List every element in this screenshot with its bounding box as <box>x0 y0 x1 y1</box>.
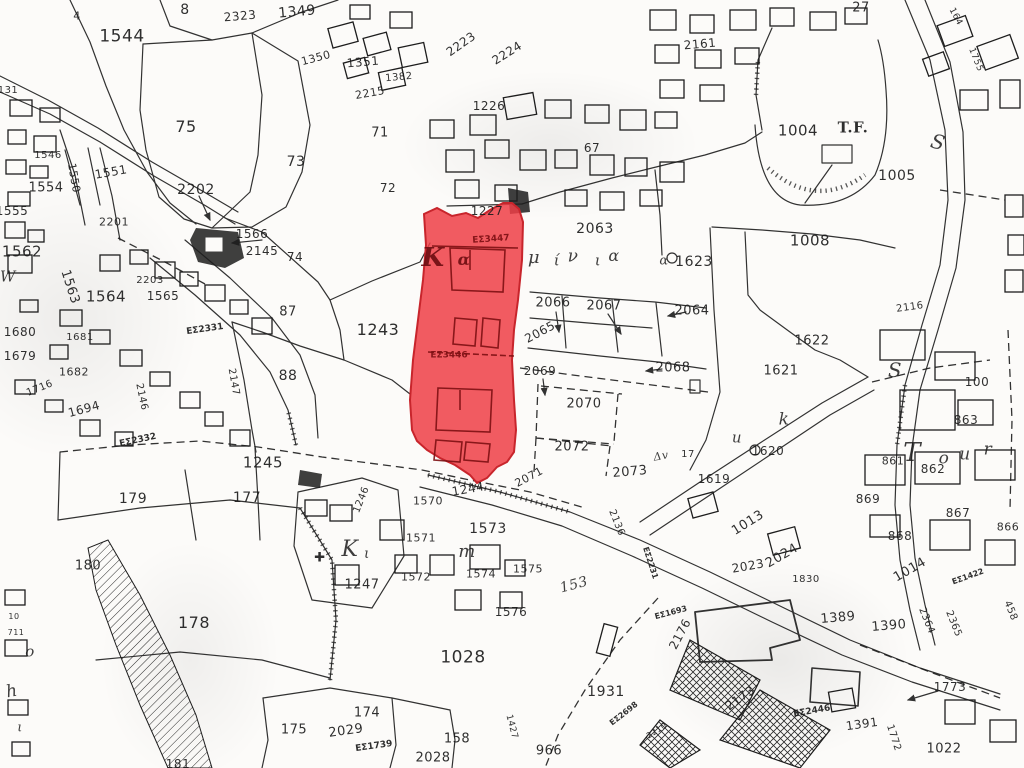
map-label: Δv <box>653 449 670 462</box>
map-label: 2202 <box>177 183 215 197</box>
map-label: 867 <box>946 507 970 519</box>
map-label: Κ <box>342 539 359 561</box>
map-label: 1620 <box>752 445 785 457</box>
map-label: 1028 <box>440 650 485 667</box>
map-label: 1247 <box>344 579 379 592</box>
map-label: 2364 <box>916 606 936 635</box>
map-label: EΣ1422 <box>951 568 985 587</box>
map-label: 10 <box>8 613 19 621</box>
map-label: 2067 <box>586 300 621 313</box>
map-label: 88 <box>279 369 298 383</box>
map-label: 1623 <box>675 255 713 269</box>
map-label: 27 <box>852 2 870 15</box>
map-label: 1014 <box>892 556 929 585</box>
map-label: α <box>659 255 668 268</box>
map-label: 177 <box>233 491 261 505</box>
map-label: 966 <box>536 745 562 758</box>
map-label: EΣ2332 <box>119 433 157 450</box>
map-label: 1564 <box>86 290 126 305</box>
map-label: m <box>458 543 476 561</box>
map-label: 180 <box>75 560 101 573</box>
map-label: 1679 <box>4 350 37 362</box>
map-label: 2116 <box>896 301 925 315</box>
map-label: 1226 <box>473 100 506 112</box>
map-label: 2071 <box>513 465 545 489</box>
map-label: 1550 <box>66 162 82 193</box>
map-label: 2136 <box>606 508 626 537</box>
map-label: 1681 <box>66 333 93 343</box>
map-label: T <box>903 440 921 466</box>
map-label: EΣ3447 <box>472 234 510 246</box>
map-label: 2203 <box>136 276 163 286</box>
map-label: 1427 <box>503 714 518 740</box>
map-label: 179 <box>119 492 147 506</box>
map-label: 1682 <box>59 367 89 378</box>
map-label: 1008 <box>790 234 830 249</box>
map-label: S <box>929 131 948 154</box>
map-label: 74 <box>287 251 303 263</box>
map-label: 1390 <box>871 618 907 634</box>
map-label: 2145 <box>246 245 279 257</box>
map-label: 1571 <box>406 533 436 544</box>
map-label: 1931 <box>587 685 625 699</box>
map-label: 1551 <box>94 163 128 180</box>
map-label: u <box>959 447 970 464</box>
map-label: ν <box>568 249 579 266</box>
map-label: 1389 <box>820 610 856 626</box>
map-label: 2323 <box>223 9 256 24</box>
map-label: 869 <box>856 493 880 505</box>
map-label: EΣ2331 <box>186 323 224 337</box>
map-label: 4 <box>73 11 81 22</box>
map-label: 73 <box>287 155 306 169</box>
map-label: ί <box>554 254 560 269</box>
map-label: 17 <box>681 450 695 460</box>
map-label: r <box>984 442 993 459</box>
map-label: 1772 <box>884 723 902 752</box>
map-label: 1351 <box>346 55 379 70</box>
map-label: 1013 <box>730 508 767 538</box>
map-label: 71 <box>371 127 389 140</box>
map-label: 2176 <box>667 617 693 651</box>
map-label: 1562 <box>2 245 42 260</box>
map-label: 72 <box>380 182 396 194</box>
map-label: 1546 <box>34 151 61 161</box>
map-label: 1619 <box>698 473 731 485</box>
map-label: 153 <box>559 575 590 596</box>
map-label: 1243 <box>357 322 400 338</box>
map-label: 2063 <box>576 222 614 236</box>
map-label: T.F. <box>838 121 869 136</box>
map-label: 2028 <box>415 752 450 765</box>
map-label: ι <box>595 254 601 269</box>
map-label: 1563 <box>58 268 81 305</box>
map-label: 2066 <box>535 297 570 310</box>
map-label: 1830 <box>792 575 819 585</box>
map-label: 2070 <box>566 398 601 411</box>
map-label: 1680 <box>4 326 37 338</box>
map-label: 2173 <box>723 684 757 712</box>
map-label: ✚ <box>314 552 325 565</box>
map-label: 2069 <box>524 365 557 377</box>
map-label: 866 <box>997 522 1020 533</box>
map-label: 1755 <box>966 47 984 73</box>
map-label: Κ <box>421 245 444 271</box>
map-label: 1622 <box>794 335 829 348</box>
map-label: 2073 <box>612 464 648 480</box>
map-label: 174 <box>354 707 380 720</box>
map-label: 1245 <box>243 456 283 471</box>
map-label: 175 <box>281 724 307 737</box>
map-label: 1773 <box>934 681 967 693</box>
map-label: 1350 <box>300 49 332 67</box>
map-label: ι <box>364 547 370 561</box>
map-label: 1576 <box>495 606 528 618</box>
map-label: 1554 <box>28 182 63 195</box>
map-label: 2064 <box>674 305 709 318</box>
map-label: 2147 <box>226 368 241 397</box>
map-label: EΣ2446 <box>793 704 831 719</box>
map-label: 2223 <box>444 30 478 58</box>
map-label: 100 <box>965 376 989 388</box>
map-label: 2146 <box>133 383 148 412</box>
map-label: S <box>888 360 902 380</box>
map-label: 2224 <box>490 39 524 66</box>
map-label: EΣ2698 <box>608 701 639 728</box>
map-label: 861 <box>882 456 905 467</box>
map-label: 2161 <box>683 37 716 52</box>
map-label: EΣ2231 <box>641 546 659 580</box>
map-label: 1570 <box>413 496 443 507</box>
map-label: 178 <box>178 615 210 631</box>
map-label: 1391 <box>845 716 879 732</box>
map-label: 1694 <box>67 399 102 419</box>
map-label: k <box>779 412 790 429</box>
map-label: h <box>5 683 19 702</box>
map-label: ι <box>17 722 23 735</box>
map-label: 863 <box>954 414 978 426</box>
map-label: 1349 <box>278 3 317 20</box>
map-label: 711 <box>8 629 25 637</box>
map-label: 2065 <box>523 319 557 345</box>
map-label: 1573 <box>469 522 507 536</box>
map-label: o <box>939 451 950 468</box>
map-label: 2210 <box>645 722 668 741</box>
map-label: 2024 <box>764 542 801 571</box>
map-label: 2215 <box>354 85 385 101</box>
labels-layer: 8232313494154413501351138222152223222412… <box>0 0 1024 768</box>
map-label: 164 <box>947 7 964 28</box>
map-label: W <box>0 270 16 285</box>
map-label: 2068 <box>655 362 690 375</box>
map-label: 1572 <box>401 572 431 583</box>
map-label: 1004 <box>778 124 818 139</box>
map-label: 181 <box>166 758 190 768</box>
map-label: 1716 <box>25 379 54 399</box>
map-label: 2201 <box>99 217 129 228</box>
map-label: EΣ3446 <box>430 352 467 361</box>
map-label: 87 <box>279 306 297 319</box>
map-label: 1022 <box>926 743 961 756</box>
map-label: 1246 <box>352 485 372 514</box>
map-label: 2023 <box>731 557 765 574</box>
map-label: α <box>458 252 471 268</box>
map-label: EΣ1739 <box>355 740 393 754</box>
map-label: 458 <box>1002 600 1019 623</box>
map-label: 1565 <box>147 290 180 302</box>
map-label: 75 <box>175 119 196 135</box>
map-label: 131 <box>0 86 18 96</box>
map-label: μ <box>528 249 540 267</box>
map-label: 1574 <box>466 569 496 580</box>
map-label: 1382 <box>385 72 413 84</box>
map-label: 67 <box>584 142 600 154</box>
map-label: 1575 <box>513 564 543 575</box>
map-label: α <box>608 248 619 264</box>
map-label: 1621 <box>763 365 798 378</box>
map-label: 158 <box>444 733 470 746</box>
cadastral-map: 8232313494154413501351138222152223222412… <box>0 0 1024 768</box>
map-label: 868 <box>888 530 912 542</box>
map-label: 1555 <box>0 205 28 217</box>
map-label: 2365 <box>943 609 963 638</box>
map-label: 1005 <box>878 169 916 183</box>
map-label: 1244 <box>451 480 485 497</box>
map-label: 2029 <box>328 722 365 740</box>
map-label: 1544 <box>99 29 144 46</box>
map-label: 8 <box>180 3 189 17</box>
map-label: 2072 <box>554 441 589 454</box>
map-label: 1566 <box>236 228 269 240</box>
map-label: 1227 <box>471 205 504 217</box>
map-label: o <box>25 645 35 660</box>
map-label: u <box>732 431 742 446</box>
